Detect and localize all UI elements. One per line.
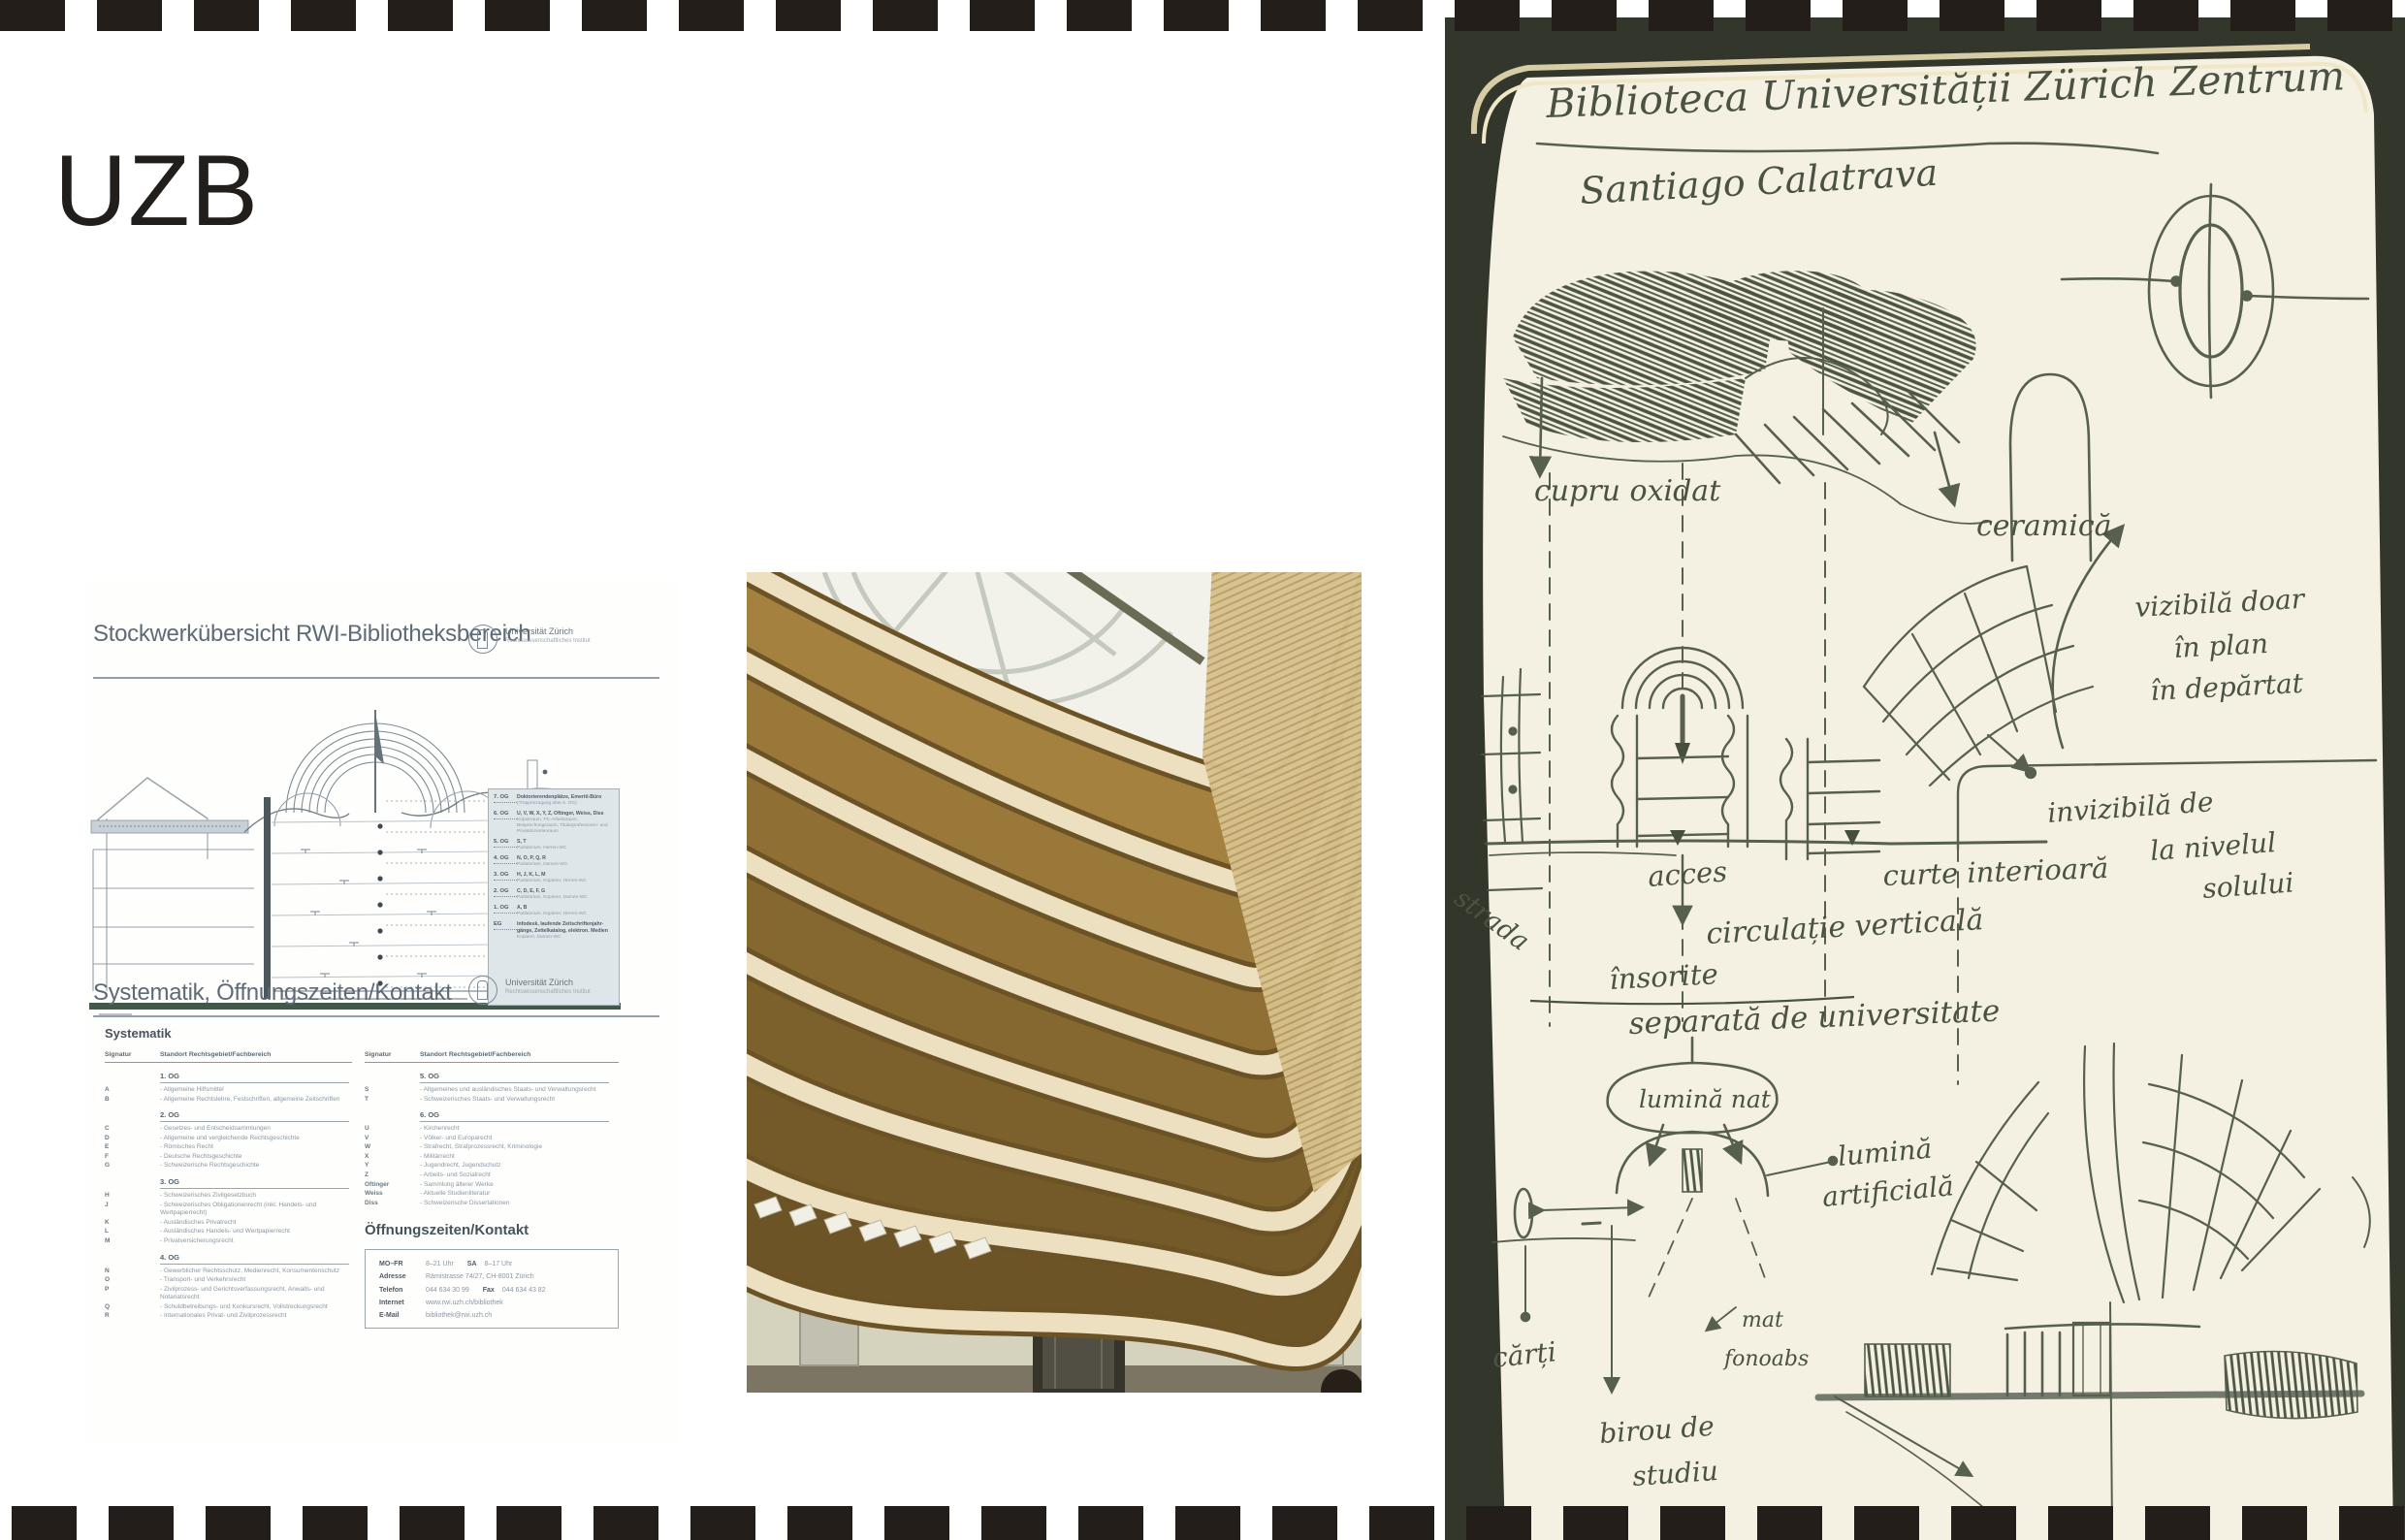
table-row: U- Kirchenrecht [365, 1125, 617, 1134]
table-row: B- Allgemeine Rechtslehre, Festschriften… [105, 1096, 357, 1105]
document-page2-title: Systematik, Öffnungszeiten/Kontakt [93, 979, 452, 1007]
label-fonoabs: fonoabs [1722, 1347, 1809, 1371]
table-row: Diss- Schweizerische Dissertationen [365, 1200, 617, 1208]
systematik-column-left: 1. OG A- Allgemeine Hilfsmittel B- A [105, 1065, 357, 1322]
label-acces: acces [1647, 854, 1728, 893]
uzh-logo-subtitle: Rechtswissenschaftliches Institut [505, 989, 591, 995]
contact-row: MO–FR8–21 UhrSA8–17 Uhr [379, 1258, 618, 1270]
table-row: Y- Jugendrecht, Jugendschutz [365, 1162, 617, 1171]
contact-row: Telefon044 634 30 99Fax044 634 43 82 [379, 1284, 618, 1297]
table-row: Oftinger- Sammlung älterer Werke [365, 1181, 617, 1190]
contact-row: Internetwww.rwi.uzh.ch/bibliothek [379, 1297, 618, 1309]
table-row: H- Schweizerisches Zivilgesetzbuch [105, 1192, 357, 1201]
uzh-logo-icon [468, 976, 497, 1005]
uzh-logo-subtitle: Rechtswissenschaftliches Institut [505, 638, 591, 644]
table-row: Weiss- Aktuelle Studienliteratur [365, 1190, 617, 1199]
sketchbook-photo: Biblioteca Universității Zürich Zentrum … [1445, 17, 2405, 1540]
label-carti: cărți [1491, 1335, 1557, 1374]
label-ceramica: ceramică [1976, 509, 2112, 543]
legend-row: 3. OG H, J, K, L, M Parlatorium, Kopiere… [494, 872, 615, 884]
uzh-logo-name: Universität Zürich [505, 978, 573, 987]
label-mat: mat [1742, 1308, 1783, 1332]
header-rule [93, 1015, 659, 1017]
document-page1-title: Stockwerkübersicht RWI-Bibliotheksbereic… [93, 621, 530, 648]
table-row: Q- Schuldbetreibungs- und Konkursrecht, … [105, 1303, 357, 1312]
table-row: D- Allgemeine und vergleichende Rechtsge… [105, 1135, 357, 1143]
page-title: UZB [54, 134, 259, 249]
label-invizibila-3: solului [2201, 866, 2294, 904]
contact-row: E-Mailbibliothek@rwi.uzh.ch [379, 1309, 618, 1322]
table-row: M- Privatversicherungsrecht [105, 1237, 357, 1246]
label-cupru-oxidat: cupru oxidat [1534, 474, 1721, 508]
uzh-logo-icon [468, 625, 497, 654]
table-row: V- Völker- und Europarecht [365, 1135, 617, 1143]
table-row: X- Militärrecht [365, 1153, 617, 1162]
uzh-logo-name: Universität Zürich [505, 626, 573, 636]
label-vizibila-2: în plan [2173, 627, 2269, 664]
filmstrip-top-border [0, 0, 2405, 31]
uzh-logo: Universität Zürich Rechtswissenschaftlic… [468, 625, 662, 658]
systematik-heading: Systematik [105, 1026, 172, 1041]
legend-row: 5. OG S, T Parlatorium, Herren-WC [494, 839, 615, 851]
table-row: G- Schweizerische Rechtsgeschichte [105, 1162, 357, 1171]
atrium-photo [747, 572, 1362, 1393]
legend-row: EG Infodesk, laufende Zeitschriftenjahr-… [494, 921, 615, 941]
label-birou-2: studiu [1631, 1455, 1719, 1492]
table-row: L- Ausländisches Handels- und Wertpapier… [105, 1228, 357, 1236]
label-lumina-nat: lumină nat [1639, 1085, 1772, 1113]
legend-row: 4. OG N, O, P, Q, R Parlatorium, Damen-W… [494, 855, 615, 868]
systematik-column-right: 5. OG S- Allgemeines und ausländisches S… [365, 1065, 617, 1208]
uzh-logo-2: Universität Zürich Rechtswissenschaftlic… [468, 976, 662, 1009]
table-row: N- Gewerblicher Rechtsschutz, Medienrech… [105, 1267, 357, 1276]
presentation-slide: UZB Stockwerkübersicht RWI-Bibliotheksbe… [0, 0, 2405, 1540]
table-header-right: Signatur Standort Rechtsgebiet/Fachberei… [365, 1051, 619, 1063]
table-row: K- Ausländisches Privatrecht [105, 1219, 357, 1228]
contact-row: AdresseRämistrasse 74/27, CH-8001 Zürich [379, 1270, 618, 1283]
table-row: T- Schweizerisches Staats- und Verwaltun… [365, 1096, 617, 1105]
table-row: C- Gesetzes- und Entscheidsammlungen [105, 1125, 357, 1134]
table-row: F- Deutsche Rechtsgeschichte [105, 1153, 357, 1162]
table-row: R- Internationales Privat- und Zivilproz… [105, 1312, 357, 1321]
floor-legend: 7. OG Doktorierendenplätze, Emeriti-Büro… [488, 788, 620, 1006]
legend-row: 7. OG Doktorierendenplätze, Emeriti-Büro… [494, 794, 615, 807]
library-floor-plan-document: Stockwerkübersicht RWI-Bibliotheksbereic… [85, 580, 679, 1445]
table-row: A- Allgemeine Hilfsmittel [105, 1086, 357, 1095]
table-row: E- Römisches Recht [105, 1143, 357, 1152]
legend-row: 2. OG C, D, E, F, G Parlatorium, Kopiere… [494, 888, 615, 901]
filmstrip-bottom-border [0, 1506, 2405, 1540]
table-header-left: Signatur Standort Rechtsgebiet/Fachberei… [105, 1051, 352, 1063]
legend-row: 1. OG A, B Parlatorium, Kopierer, Herren… [494, 905, 615, 917]
table-row: Z- Arbeits- und Sozialrecht [365, 1171, 617, 1180]
header-rule [93, 677, 659, 679]
table-row: W- Strafrecht, Strafprozessrecht, Krimin… [365, 1143, 617, 1152]
table-row: J- Schweizerisches Obligationenrecht (in… [105, 1202, 357, 1218]
legend-row: 6. OG U, V, W, X, Y, Z, Oftinger, Weiss,… [494, 811, 615, 835]
hours-heading: Öffnungszeiten/Kontakt [365, 1222, 529, 1238]
table-row: O- Transport- und Verkehrsrecht [105, 1276, 357, 1285]
label-insorite: însorite [1609, 957, 1719, 996]
contact-box: MO–FR8–21 UhrSA8–17 Uhr AdresseRämistras… [365, 1249, 619, 1329]
table-row: S- Allgemeines und ausländisches Staats-… [365, 1086, 617, 1095]
table-row: P- Zivilprozess- und Gerichtsverfassungs… [105, 1286, 357, 1302]
